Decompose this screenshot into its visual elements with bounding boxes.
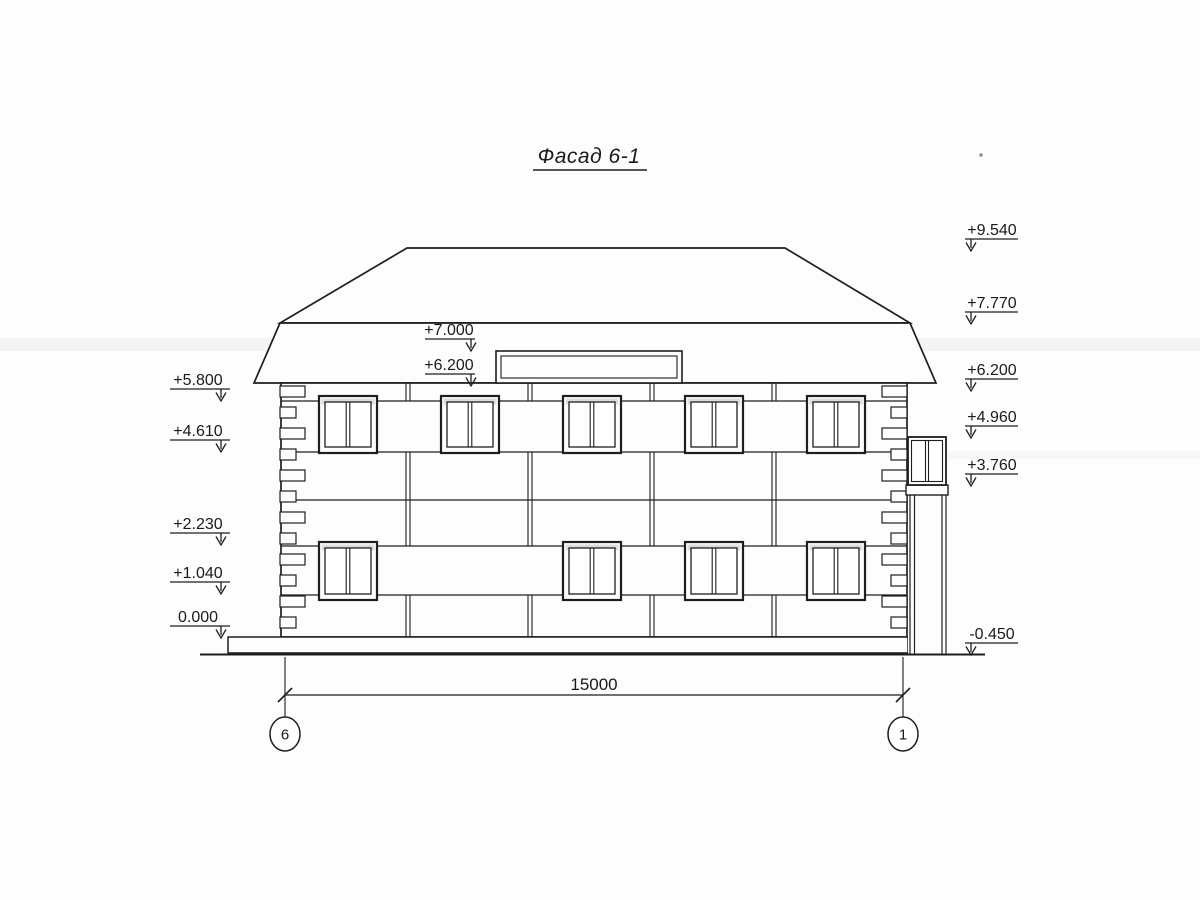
elevation-marker: 0.000 — [170, 609, 230, 638]
elevation-marker: -0.450 — [965, 626, 1018, 655]
corner-quoin — [280, 470, 305, 481]
axis-label: 6 — [281, 727, 289, 744]
elevation-marker: +4.960 — [965, 409, 1018, 438]
window-sash — [813, 548, 859, 594]
dimension-label: 15000 — [570, 675, 617, 694]
annex-shaft-fill — [908, 495, 946, 654]
dimension: 15000 — [278, 657, 910, 717]
elevation-value: -0.450 — [969, 626, 1014, 643]
window — [807, 396, 865, 453]
annex-window — [908, 437, 946, 485]
corner-quoin — [891, 407, 907, 418]
down-arrow-icon — [216, 440, 226, 452]
corner-quoin — [280, 533, 296, 544]
window — [319, 396, 377, 453]
axis-label: 1 — [899, 727, 907, 744]
corner-quoin — [891, 533, 907, 544]
corner-quoin — [280, 596, 305, 607]
elevation-value: +2.230 — [173, 516, 222, 533]
window — [563, 542, 621, 600]
corner-quoin — [882, 512, 907, 523]
corner-quoin — [882, 554, 907, 565]
elevation-marker: +9.540 — [965, 222, 1018, 251]
elevation-value: +3.760 — [967, 457, 1016, 474]
corner-quoin — [280, 617, 296, 628]
elevation-value: +7.000 — [424, 322, 473, 339]
window — [685, 542, 743, 600]
elevation-value: +4.960 — [967, 409, 1016, 426]
facade-drawing: 1500061+5.800+4.610+2.230+1.0400.000+9.5… — [0, 0, 1200, 900]
window-sash — [691, 548, 737, 594]
elevation-value: +9.540 — [967, 222, 1016, 239]
axis-bubble: 1 — [888, 717, 918, 751]
window-sash — [569, 402, 615, 447]
building-elevation — [200, 248, 985, 655]
elevation-marker: +3.760 — [965, 457, 1018, 486]
corner-quoin — [280, 491, 296, 502]
window — [563, 396, 621, 453]
window-sash — [325, 548, 371, 594]
down-arrow-icon — [216, 582, 226, 594]
window-sash — [569, 548, 615, 594]
corner-quoin — [280, 449, 296, 460]
corner-quoin — [891, 491, 907, 502]
elevation-marker: +4.610 — [170, 423, 230, 452]
drawing-sheet: 1500061+5.800+4.610+2.230+1.0400.000+9.5… — [0, 0, 1200, 900]
down-arrow-icon — [966, 379, 976, 391]
window — [441, 396, 499, 453]
window — [685, 396, 743, 453]
elevation-value: +4.610 — [173, 423, 222, 440]
down-arrow-icon — [966, 426, 976, 438]
down-arrow-icon — [966, 239, 976, 251]
roof-hip — [280, 248, 910, 323]
elevation-value: +6.200 — [967, 362, 1016, 379]
window-sash — [691, 402, 737, 447]
elevation-marker: +5.800 — [170, 372, 230, 401]
corner-quoin — [882, 470, 907, 481]
plinth — [228, 637, 908, 653]
elevation-value: +5.800 — [173, 372, 222, 389]
corner-quoin — [891, 449, 907, 460]
elevation-marker: +7.770 — [965, 295, 1018, 324]
corner-quoin — [882, 596, 907, 607]
window-sash — [447, 402, 493, 447]
corner-quoin — [280, 575, 296, 586]
elevation-marker: +1.040 — [170, 565, 230, 594]
annex-sill-band — [906, 485, 948, 495]
corner-quoin — [891, 617, 907, 628]
down-arrow-icon — [216, 626, 226, 638]
window — [807, 542, 865, 600]
elevation-value: +6.200 — [424, 357, 473, 374]
down-arrow-icon — [966, 312, 976, 324]
axis-bubble: 6 — [270, 717, 300, 751]
corner-quoin — [280, 512, 305, 523]
window — [319, 542, 377, 600]
elevation-value: 0.000 — [178, 609, 218, 626]
down-arrow-icon — [216, 389, 226, 401]
elevation-value: +7.770 — [967, 295, 1016, 312]
elevation-marker: +2.230 — [170, 516, 230, 545]
corner-quoin — [280, 428, 305, 439]
annex — [906, 437, 948, 654]
window-sash — [325, 402, 371, 447]
corner-quoin — [882, 428, 907, 439]
window-sash — [813, 402, 859, 447]
down-arrow-icon — [216, 533, 226, 545]
corner-quoin — [882, 386, 907, 397]
corner-quoin — [280, 386, 305, 397]
corner-quoin — [891, 575, 907, 586]
elevation-marker: +6.200 — [965, 362, 1018, 391]
elevation-value: +1.040 — [173, 565, 222, 582]
down-arrow-icon — [966, 474, 976, 486]
down-arrow-icon — [966, 643, 976, 655]
corner-quoin — [280, 554, 305, 565]
ink-dot — [979, 153, 983, 157]
corner-quoin — [280, 407, 296, 418]
drawing-title: Фасад 6-1 — [538, 145, 641, 168]
